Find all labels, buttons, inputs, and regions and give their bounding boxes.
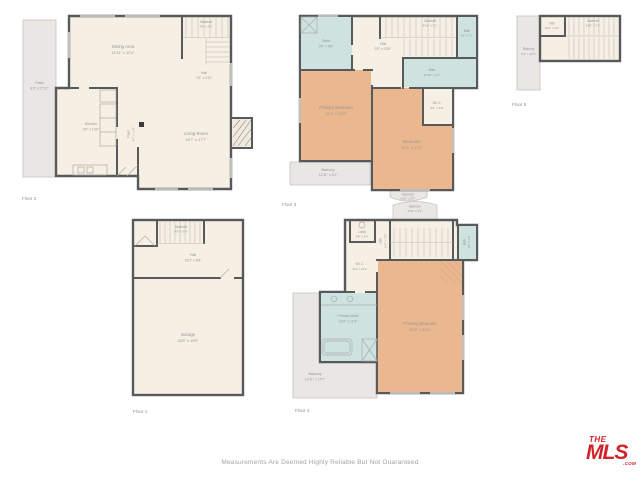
room-dims: 8'10" x 7'1" bbox=[423, 24, 438, 28]
room-dims: 14'11" x 17'7" bbox=[305, 378, 326, 382]
logo-mls-text: MLS bbox=[586, 444, 636, 462]
room-dims: 12'11" x 3'2" bbox=[319, 173, 338, 177]
room-label: Primary Bath bbox=[337, 314, 358, 318]
room-living-room: Living Room 16'7" x 17'7" bbox=[184, 131, 208, 142]
room-dims: 7'6" x 4'11" bbox=[196, 76, 213, 80]
floor-2-outline bbox=[56, 16, 231, 189]
room-label: Primary Bedroom bbox=[319, 105, 353, 110]
room-dims: 14'2" x 22'0" bbox=[409, 327, 431, 332]
room-dims: 6'10" x 3'2" bbox=[408, 209, 423, 213]
room-stairwell: Stairwell 9'8" x 3'0" bbox=[174, 225, 187, 234]
room-dims: 9'8" x 3'0" bbox=[174, 230, 187, 234]
room-label: Stairwell bbox=[424, 19, 436, 23]
room-dims: 5'4" x 5'8" bbox=[430, 106, 443, 110]
room-primary-bath: Primary Bath 10'4" x 11'8" bbox=[337, 314, 358, 324]
room-label: Bath bbox=[429, 68, 436, 72]
floor-1-plan: Stairwell 9'8" x 3'0" Hall 18'3" x 9'8" … bbox=[125, 215, 250, 420]
floor-4-plan: Balcony 6'10" x 3'2" Lndry 3'8" x 5'4" H… bbox=[290, 195, 490, 420]
room-stairwell: Stairwell 9'8" x 3'4" bbox=[199, 20, 212, 29]
floor-label: Floor 5 bbox=[512, 102, 527, 107]
room-dims: 19'11" x 12'4" bbox=[111, 50, 135, 55]
room-dims: 10'10" x 5'1" bbox=[424, 73, 440, 77]
room-dims: 9'0" x 12'6" bbox=[375, 47, 393, 51]
room-label: Stairwell bbox=[587, 19, 599, 23]
themls-logo: THE MLS .COM bbox=[586, 436, 636, 466]
room-dining-area: Dining Area 19'11" x 12'4" bbox=[111, 44, 135, 55]
room-label: Hall bbox=[379, 238, 383, 244]
room-dims: 4'0" x 12'4" bbox=[353, 267, 368, 271]
room-dims: 16'7" x 17'7" bbox=[185, 137, 207, 142]
room-label: W.I.C. bbox=[356, 262, 365, 266]
room-label: Foyer bbox=[127, 129, 131, 138]
floorplan-sheet: Patio 8'3" x 27'11" Dining Area 19'11" x… bbox=[0, 0, 640, 480]
disclaimer-text: Measurements Are Deemed Highly Reliable … bbox=[0, 459, 640, 466]
room-dims: 8'3" x 27'11" bbox=[30, 87, 49, 91]
room-label: Balcony bbox=[321, 168, 334, 172]
room-label: Bath bbox=[464, 29, 471, 33]
room-dims: 4'7" x 13'4" bbox=[132, 127, 136, 142]
room-label: Dining Area bbox=[112, 44, 135, 49]
room-label: Garage bbox=[181, 332, 196, 337]
room-label: Balcony bbox=[523, 47, 535, 51]
room-dims: 18'3" x 9'8" bbox=[185, 259, 203, 263]
room-label: Patio bbox=[35, 81, 43, 85]
room-label: Kitchen bbox=[85, 122, 97, 126]
room-label: Hall bbox=[380, 42, 387, 46]
room-dims: 14'1" x 17'1" bbox=[401, 145, 423, 150]
floor-label: Floor 1 bbox=[133, 409, 148, 414]
room-stairwell: Stairwell 8'10" x 7'1" bbox=[423, 19, 438, 28]
room-dims: 9'9" x 9'9" bbox=[319, 45, 335, 49]
room-dims: 18'3" x 19'9" bbox=[177, 338, 199, 343]
room-label: Balcony bbox=[308, 372, 321, 376]
room-label: Hall bbox=[201, 71, 208, 75]
room-stairwell: Stairwell 14'6" x 7'1" bbox=[586, 19, 601, 28]
room-dims: 10'4" x 11'8" bbox=[339, 320, 358, 324]
room-dims: 2'11" x 2'4" bbox=[545, 26, 560, 30]
room-label: Balcony bbox=[409, 205, 421, 209]
floor-label: Floor 4 bbox=[295, 408, 310, 413]
room-dims: 14'6" x 7'1" bbox=[586, 24, 601, 28]
room-dims: 12'1" x 14'9" bbox=[325, 111, 347, 116]
room-label: Bedroom bbox=[403, 139, 421, 144]
room-dims: 9'8" x 3'4" bbox=[199, 25, 212, 29]
floor-3-plan: Bath 9'9" x 9'9" Hall 9'0" x 12'6" Stair… bbox=[280, 8, 480, 214]
room-label: Bath bbox=[463, 238, 467, 245]
room-balcony-bay: Balcony 6'10" x 3'2" bbox=[408, 205, 423, 214]
floor-label: Floor 2 bbox=[22, 196, 37, 201]
room-label: Bath bbox=[322, 39, 330, 43]
room-bedroom: Bedroom 14'1" x 17'1" bbox=[401, 139, 423, 150]
room-label: Stairwell bbox=[200, 20, 212, 24]
fireplace bbox=[231, 118, 252, 148]
room-label: Hall bbox=[190, 253, 197, 257]
room-dims: 9'6" x 13'0" bbox=[83, 128, 101, 132]
patio-area bbox=[23, 20, 56, 177]
room-label: Primary Bedroom bbox=[403, 321, 437, 326]
room-label: Lndry bbox=[358, 230, 366, 234]
floor-2-plan: Patio 8'3" x 27'11" Dining Area 19'11" x… bbox=[20, 8, 260, 210]
room-balcony: Balcony 5'4" x 12'4" bbox=[521, 47, 536, 56]
floor-5-plan: Hall 2'11" x 2'4" Stairwell 14'6" x 7'1"… bbox=[505, 8, 640, 113]
room-dims: 3'8" x 7'0" bbox=[467, 235, 471, 248]
room-label: W.I.C. bbox=[433, 101, 442, 105]
room-dims: 3'4" x 7'1" bbox=[460, 34, 473, 38]
room-dims: 3'8" x 5'4" bbox=[355, 235, 368, 239]
room-label: Hall bbox=[549, 22, 555, 26]
room-dims: 14'1" x 7'5" bbox=[384, 234, 388, 249]
room-dims: 5'4" x 12'4" bbox=[521, 52, 536, 56]
room-label: Stairwell bbox=[175, 225, 187, 229]
room-label: Living Room bbox=[184, 131, 208, 136]
structural-column bbox=[139, 122, 144, 127]
